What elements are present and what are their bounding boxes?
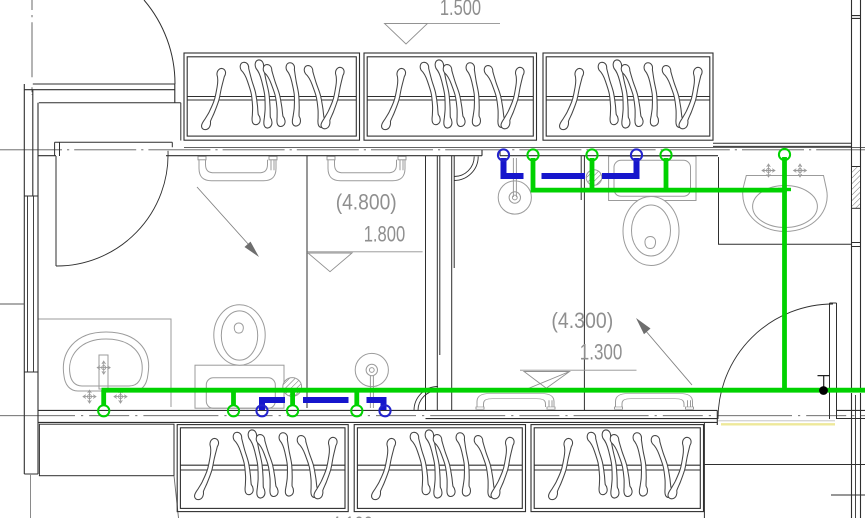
- svg-text:1.500: 1.500: [440, 0, 481, 20]
- svg-text:4.100: 4.100: [331, 512, 373, 518]
- svg-text:(4.800): (4.800): [336, 190, 397, 215]
- svg-text:(4.300): (4.300): [551, 308, 613, 333]
- svg-text:1.300: 1.300: [580, 340, 623, 365]
- svg-text:1.800: 1.800: [364, 222, 406, 247]
